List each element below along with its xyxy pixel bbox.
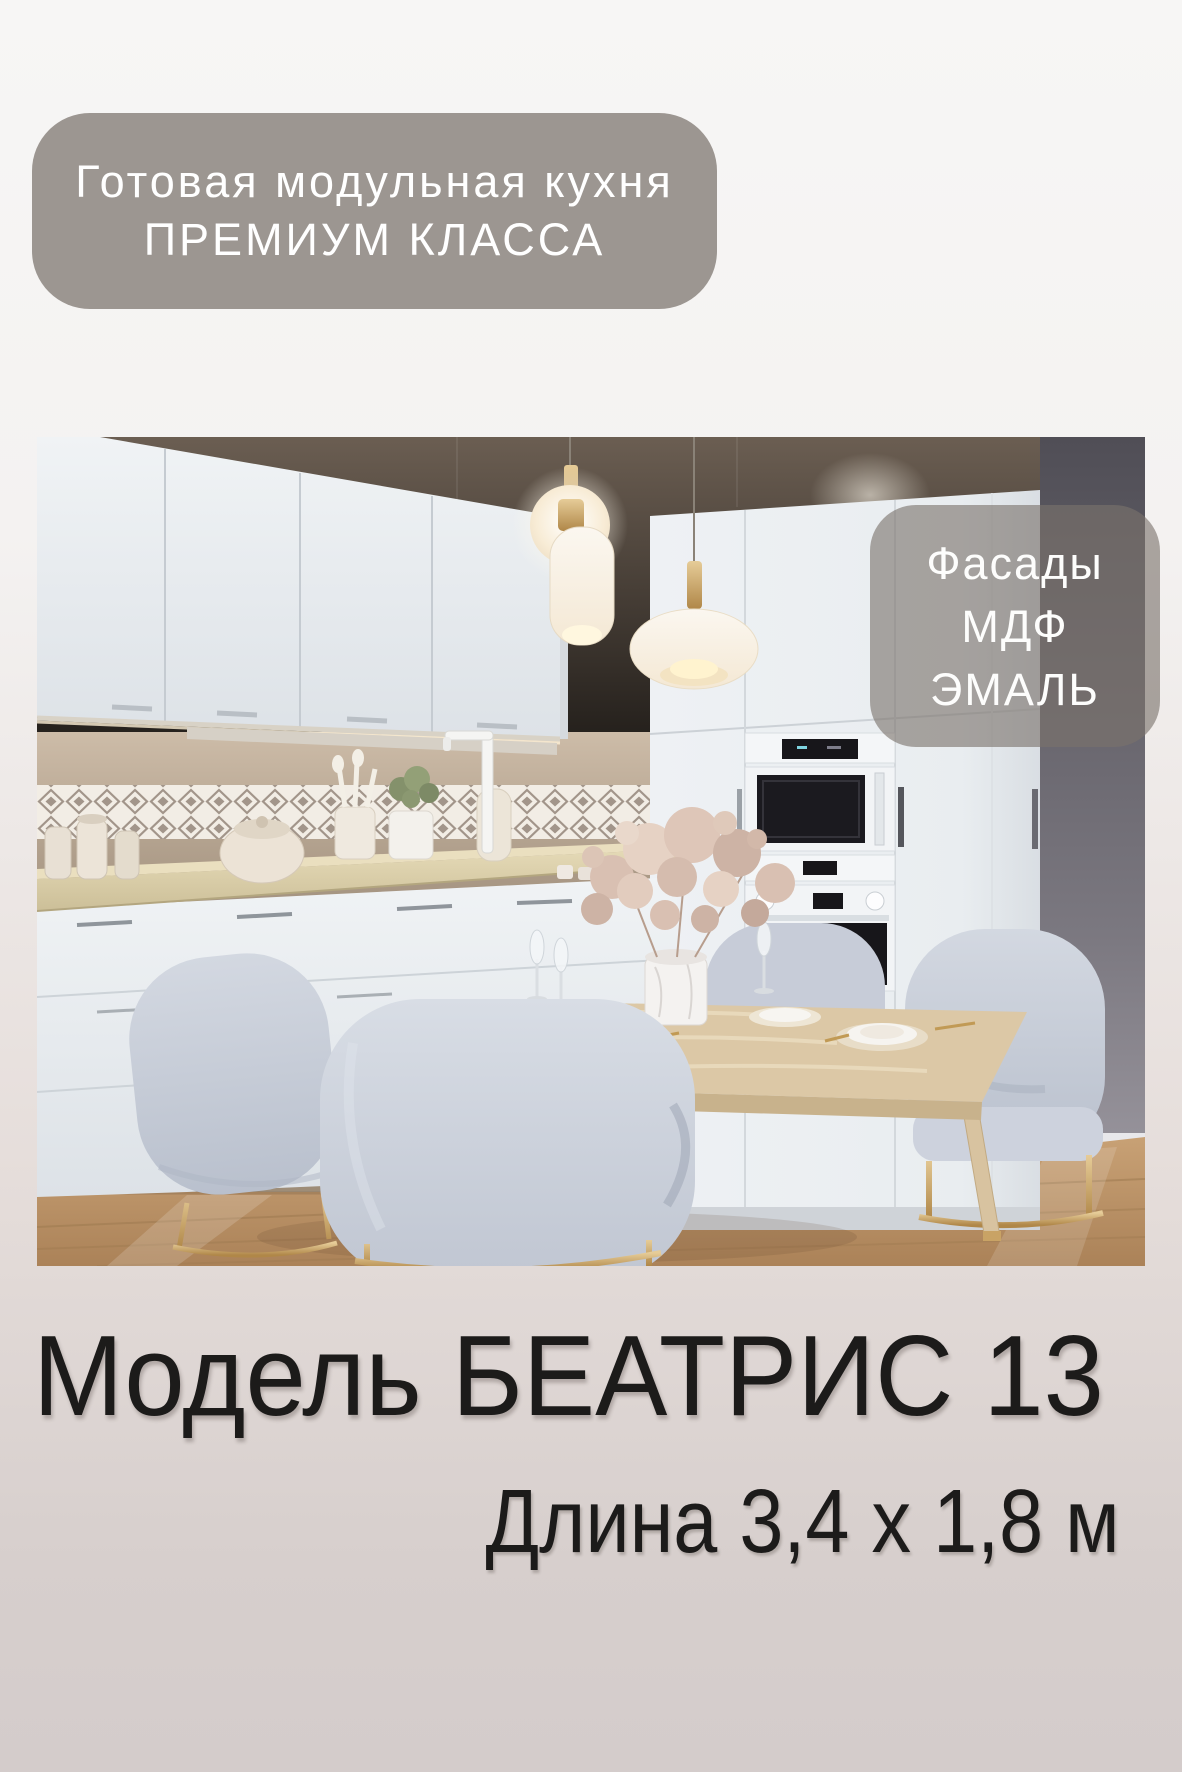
built-in-microwave [745, 767, 895, 851]
photo-badge-line2: МДФ [961, 595, 1068, 658]
photo-overlay-badge: Фасады МДФ ЭМАЛЬ [870, 505, 1160, 747]
model-title: Модель БЕАТРИС 13 [33, 1320, 1104, 1434]
photo-badge-line1: Фасады [926, 532, 1103, 595]
header-badge: Готовая модульная кухня ПРЕМИУМ КЛАССА [32, 113, 717, 309]
dimensions-text: Длина 3,4 х 1,8 м [486, 1477, 1120, 1567]
photo-badge-line3: ЭМАЛЬ [930, 658, 1100, 721]
flower-vase [645, 949, 707, 1025]
chair-front [320, 999, 695, 1266]
place-setting [749, 1007, 821, 1027]
header-badge-line1: Готовая модульная кухня [75, 153, 673, 211]
place-setting [836, 1023, 928, 1051]
header-badge-line2: ПРЕМИУМ КЛАССА [144, 211, 606, 269]
